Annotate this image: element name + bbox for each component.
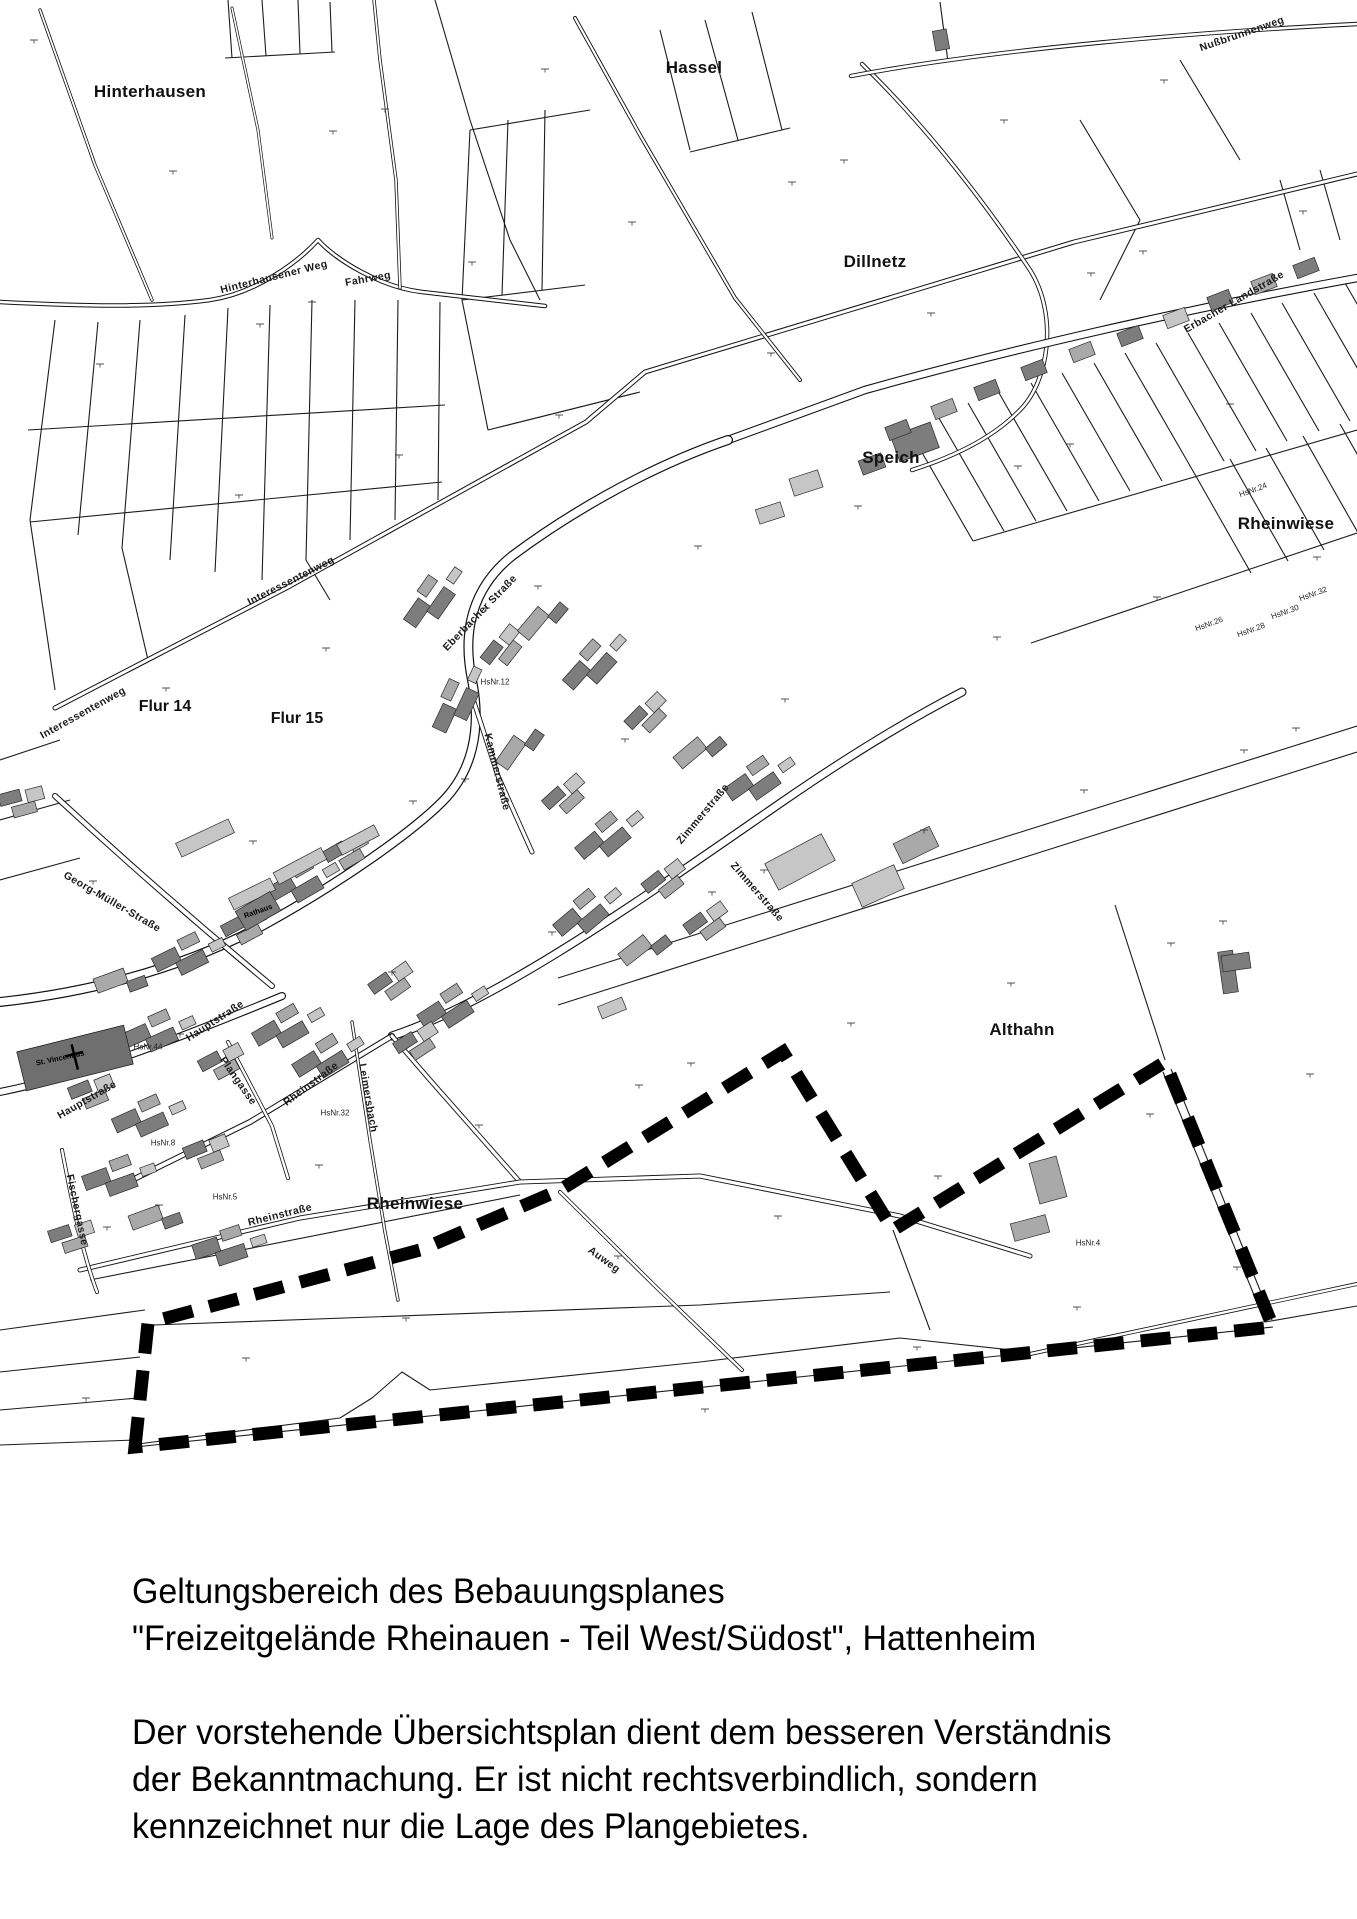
map-label-hinterhausen: Hinterhausen	[94, 82, 206, 102]
map-label-fischergasse: Fischergasse	[64, 1173, 91, 1246]
map-label-st-vincentius: St. Vincentius	[35, 1048, 85, 1067]
map-label-rheinstrasse-2: Rheinstraße	[247, 1201, 314, 1229]
map-label-hauptstrasse-1: Hauptstraße	[184, 998, 246, 1044]
caption-block: Geltungsbereich des Bebauungsplanes "Fre…	[132, 1568, 1257, 1850]
caption-spacer	[132, 1662, 1257, 1709]
map-label-flur15: Flur 15	[271, 710, 323, 728]
map-label-hsnr4: HsNr.4	[1076, 1239, 1100, 1248]
caption-body-line3: kennzeichnet nur die Lage des Plangebiet…	[132, 1803, 1257, 1850]
map-label-hsnr5: HsNr.5	[213, 1193, 237, 1202]
map-label-interessentenweg-2: Interessentenweg	[246, 554, 337, 608]
caption-title-line1: Geltungsbereich des Bebauungsplanes	[132, 1568, 1257, 1615]
map-label-hsnr32b: HsNr.32	[321, 1109, 350, 1118]
map-label-hsnr30: HsNr.30	[1270, 603, 1300, 621]
caption-body-line1: Der vorstehende Übersichtsplan dient dem…	[132, 1709, 1257, 1756]
map-label-hsnr44: HsNr.44	[134, 1043, 163, 1052]
map-label-plangasse: Plangasse	[217, 1055, 259, 1108]
overview-map: HinterhausenHasselDillnetzSpeichRheinwie…	[0, 0, 1357, 1490]
map-labels: HinterhausenHasselDillnetzSpeichRheinwie…	[0, 0, 1357, 1490]
map-label-hsnr28: HsNr.28	[1236, 621, 1266, 639]
map-label-speich: Speich	[862, 448, 920, 468]
map-label-leimersbach: Leimersbach	[356, 1063, 380, 1134]
map-label-hinterhausener-weg: Hinterhausener Weg	[219, 258, 329, 296]
map-label-hassel: Hassel	[666, 58, 723, 78]
map-label-hsnr8: HsNr.8	[151, 1139, 175, 1148]
map-label-nussbrunnenweg: Nußbrunnenweg	[1198, 14, 1286, 54]
map-label-rheinwiese-s: Rheinwiese	[367, 1194, 464, 1214]
map-label-althahn: Althahn	[989, 1020, 1054, 1040]
map-label-dillnetz: Dillnetz	[844, 252, 907, 272]
map-label-rathaus: Rathaus	[243, 902, 274, 921]
map-label-hsnr26: HsNr.26	[1194, 615, 1224, 633]
map-label-kammerstrasse: Kammerstraße	[482, 732, 513, 811]
map-label-rheinstrasse-1: Rheinstraße	[281, 1059, 341, 1108]
page: { "document": { "type": "Übersichtsplan …	[0, 0, 1357, 1919]
map-label-interessentenweg-1: Interessentenweg	[38, 685, 128, 742]
map-label-fahrweg: Fahrweg	[344, 269, 392, 289]
map-label-rheinwiese-ne: Rheinwiese	[1238, 514, 1335, 534]
map-label-zimmerstrasse-2: Zimmerstraße	[728, 860, 786, 924]
map-label-hauptstrasse-2: Hauptstraße	[55, 1078, 118, 1122]
map-label-hsnr24: HsNr.24	[1238, 481, 1268, 499]
map-label-auweg: Auweg	[586, 1244, 623, 1275]
map-label-eberbacher-strasse: Eberbacher Straße	[441, 572, 520, 653]
map-label-hsnr32: HsNr.32	[1298, 585, 1328, 603]
caption-body-line2: der Bekanntmachung. Er ist nicht rechtsv…	[132, 1756, 1257, 1803]
map-label-hsnr12: HsNr.12	[481, 678, 510, 687]
map-label-flur14: Flur 14	[139, 698, 191, 716]
map-label-zimmerstrasse-1: Zimmerstraße	[674, 781, 731, 846]
caption-title-line2: "Freizeitgelände Rheinauen - Teil West/S…	[132, 1615, 1257, 1662]
map-label-erbacher-landstrasse: Erbacher Landstraße	[1182, 268, 1286, 335]
map-label-georg-mueller-strasse: Georg-Müller-Straße	[61, 869, 162, 934]
